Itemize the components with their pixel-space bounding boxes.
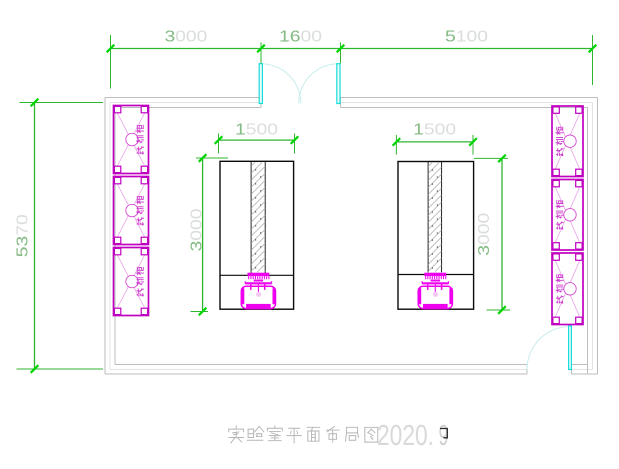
svg-text:2020.: 2020. [377,420,434,452]
svg-text:16: 16 [279,28,301,45]
svg-text:000: 000 [188,208,205,240]
svg-text:00: 00 [301,28,323,45]
svg-text:70: 70 [14,214,31,236]
svg-text:1: 1 [413,121,424,138]
svg-text:000: 000 [175,28,207,45]
svg-text:100: 100 [456,28,488,45]
svg-text:000: 000 [476,213,493,245]
svg-text:3: 3 [188,241,205,252]
svg-text:500: 500 [246,121,278,138]
svg-text:5: 5 [445,28,456,45]
svg-text:53: 53 [14,236,31,258]
svg-text:3: 3 [165,28,176,45]
svg-text:500: 500 [424,121,456,138]
svg-text:1: 1 [235,121,246,138]
svg-text:3: 3 [476,245,493,256]
